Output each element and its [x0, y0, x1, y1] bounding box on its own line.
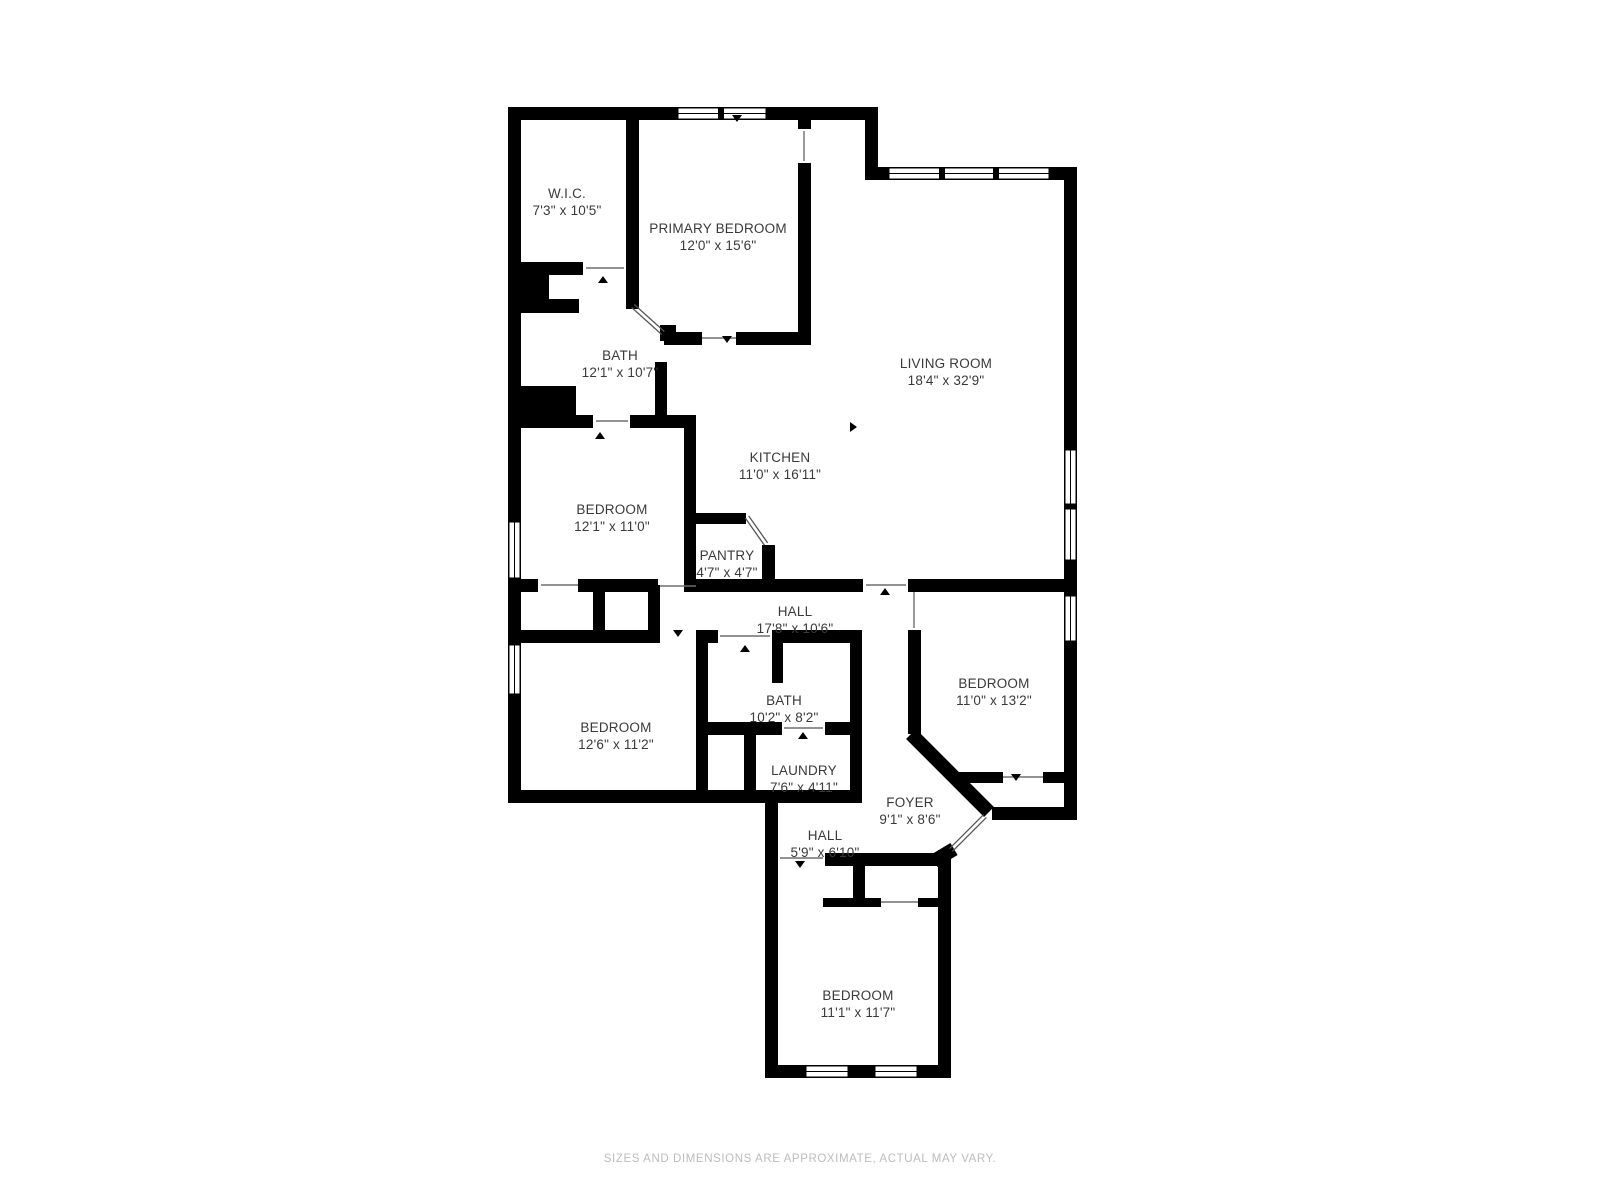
wall-segment: [908, 630, 921, 734]
door-leaf-line: [634, 305, 664, 332]
wall-segment: [853, 853, 865, 905]
wall-segment: [762, 545, 775, 590]
wall-segment: [508, 579, 538, 592]
wall-segment: [660, 325, 676, 341]
disclaimer-text: SIZES AND DIMENSIONS ARE APPROXIMATE, AC…: [0, 1153, 1600, 1165]
wall-segment: [992, 807, 1077, 820]
wall-segment: [708, 722, 782, 735]
floorplan-page: W.I.C.7'3" x 10'5"PRIMARY BEDROOM12'0" x…: [0, 0, 1600, 1200]
door-tick: [598, 276, 608, 283]
wall-segment: [798, 115, 811, 129]
wall-segment: [684, 415, 696, 592]
wall-segment: [578, 579, 658, 592]
wall-segment: [938, 850, 951, 1078]
wall-segment: [744, 735, 756, 793]
wall-segment: [696, 630, 708, 803]
wall-segment: [772, 630, 862, 643]
wall-segment: [521, 386, 576, 416]
door-tick: [798, 732, 808, 739]
wall-segment: [521, 299, 579, 313]
door-tick: [595, 432, 605, 439]
floorplan-svg: [0, 0, 1600, 1200]
door-leaf-line: [950, 815, 984, 849]
door-tick: [795, 861, 805, 868]
wall-segment: [908, 579, 1077, 592]
door-tick: [740, 645, 750, 652]
wall-segment: [626, 107, 639, 309]
wall-segment: [696, 579, 863, 592]
door-tick: [673, 630, 683, 637]
door-leaf-line: [749, 516, 768, 543]
wall-segment: [736, 332, 802, 345]
wall-segment: [508, 790, 862, 803]
door-leaf-line: [745, 518, 764, 545]
wall-segment: [508, 630, 605, 643]
wall-segment: [825, 853, 938, 866]
wall-segment: [508, 415, 593, 428]
wall-segment: [765, 790, 778, 1078]
door-tick: [850, 422, 857, 432]
wall-segment: [798, 163, 811, 345]
door-leaf-line: [632, 307, 662, 334]
wall-segment: [850, 630, 862, 803]
wall-segment: [918, 898, 938, 907]
wall-segment: [772, 643, 783, 683]
wall-segment: [696, 513, 746, 524]
door-leaf-line: [952, 817, 986, 851]
door-tick: [880, 588, 890, 595]
wall-segment: [823, 898, 881, 907]
wall-segment: [1043, 772, 1068, 783]
door-tick: [722, 336, 732, 343]
wall-segment: [765, 1065, 951, 1078]
